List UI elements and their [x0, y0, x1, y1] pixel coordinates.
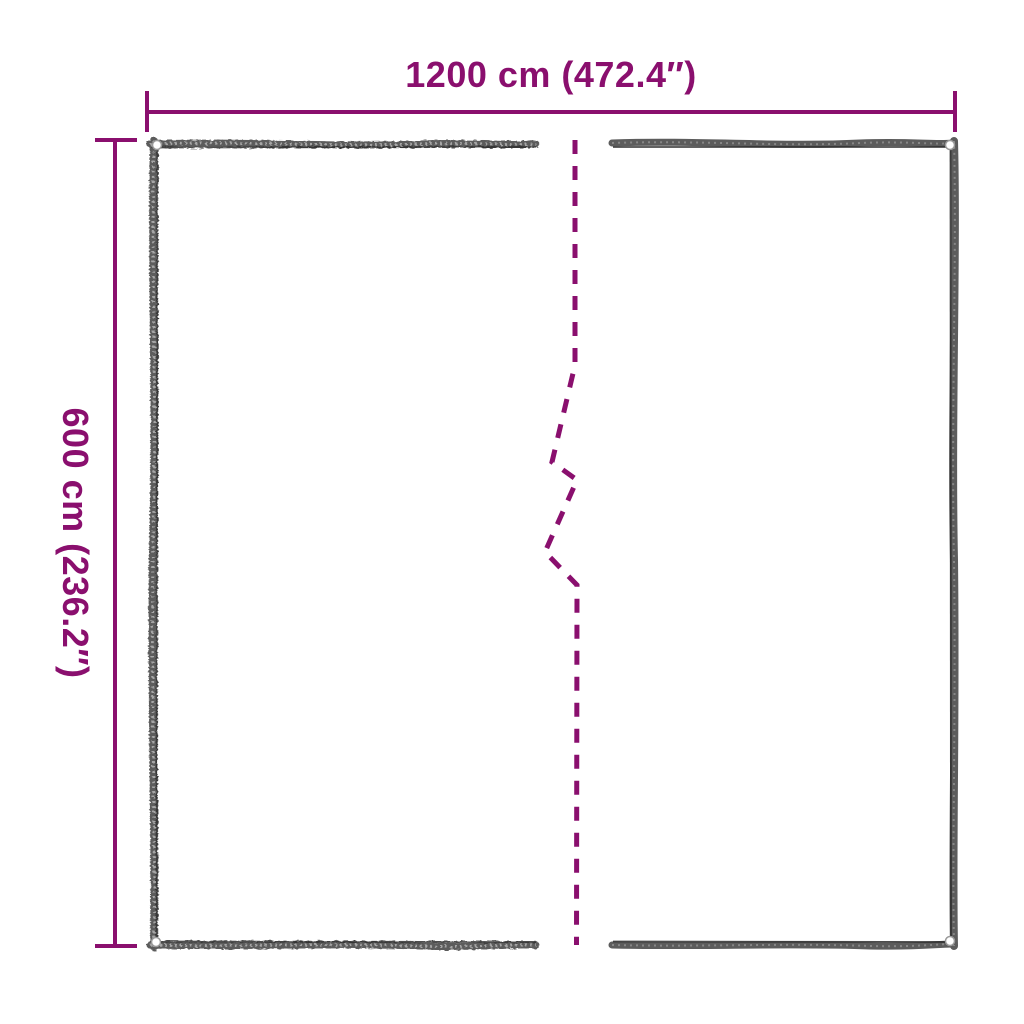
tarp-left-top-edge	[150, 143, 536, 145]
tarp-left-half	[150, 141, 536, 947]
eyelet-top-left	[153, 141, 162, 150]
eyelet-bottom-right	[946, 937, 955, 946]
tarp-left-top-inner-line	[151, 147, 536, 148]
tarp-left-inner-line	[157, 143, 158, 945]
tarp-outline	[0, 0, 1024, 1024]
eyelet-bottom-left	[152, 938, 161, 947]
tarp-left-bottom-inner-line	[151, 942, 536, 943]
tarp-right-bottom-inner-line	[613, 942, 950, 943]
break-line	[545, 140, 577, 945]
tarp-left-bottom-edge	[150, 945, 536, 947]
eyelet-top-right	[946, 141, 955, 150]
product-dimension-diagram: 1200 cm (472.4″) 600 cm (236.2″)	[0, 0, 1024, 1024]
tarp-right-half	[612, 141, 955, 946]
tarp-right-inner-line	[951, 144, 952, 944]
